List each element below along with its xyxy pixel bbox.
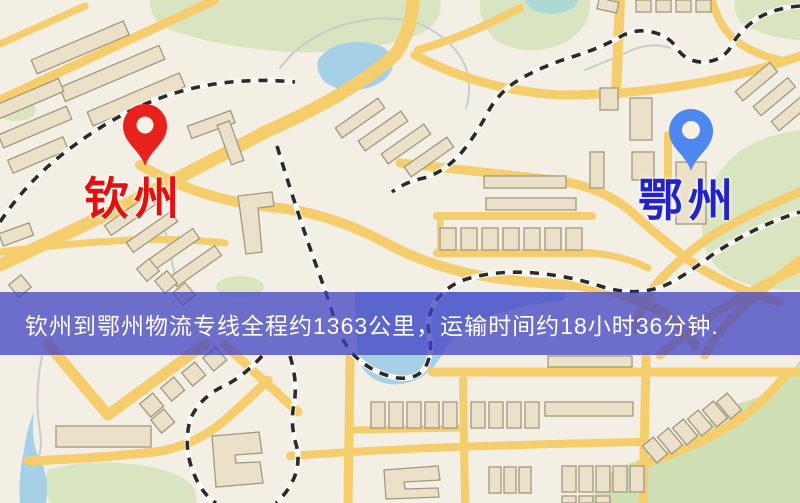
map-screenshot: 钦州 鄂州 钦州到鄂州物流专线全程约1363公里，运输时间约18小时36分钟. <box>0 0 800 503</box>
destination-label: 鄂州 <box>638 178 738 223</box>
destination-pin-hole <box>682 121 700 139</box>
origin-label: 钦州 <box>84 176 184 221</box>
info-banner: 钦州到鄂州物流专线全程约1363公里，运输时间约18小时36分钟. <box>0 292 800 355</box>
map-canvas[interactable] <box>0 0 800 503</box>
banner-text: 钦州到鄂州物流专线全程约1363公里，运输时间约18小时36分钟. <box>0 307 719 341</box>
origin-pin-hole <box>137 117 154 134</box>
